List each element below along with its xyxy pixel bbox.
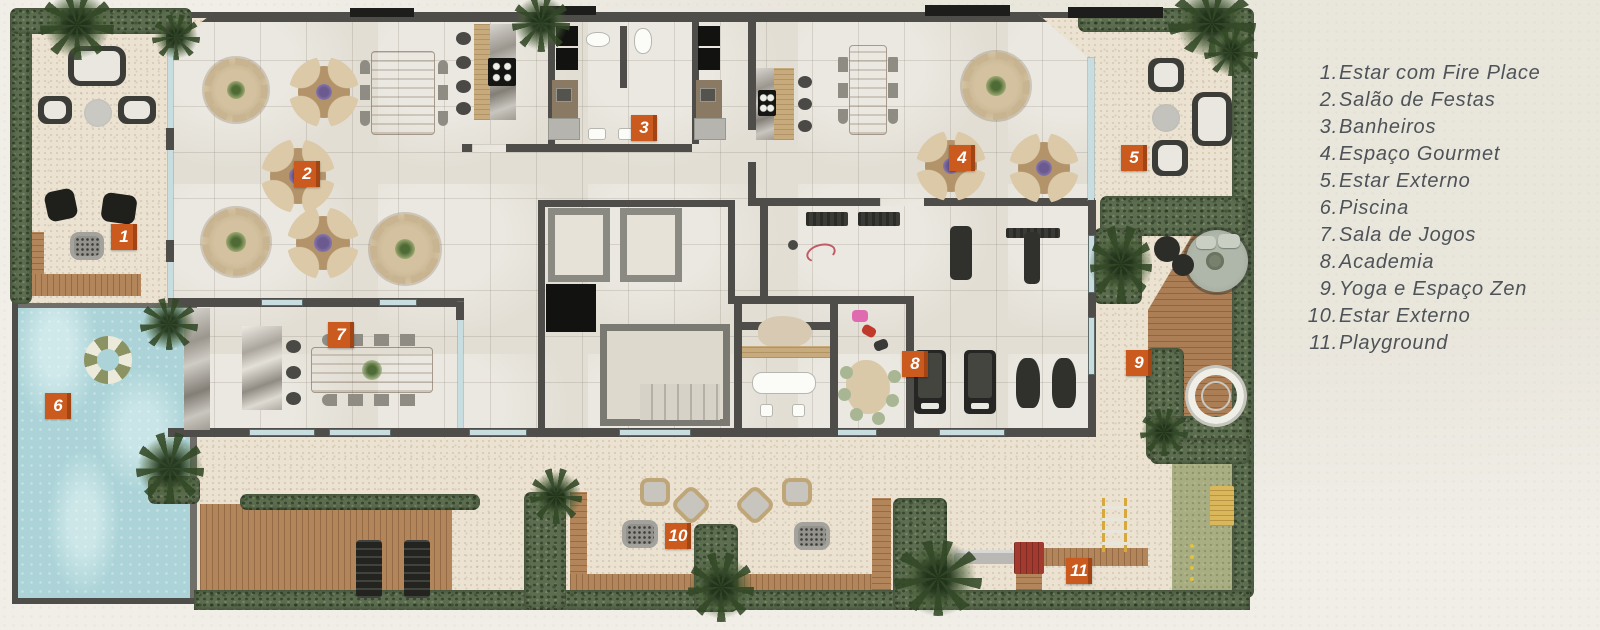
kids-seat (888, 370, 901, 383)
outdoor-armchair (1148, 58, 1184, 92)
cooktop (758, 90, 776, 116)
legend-item: 2.Salão de Festas (1294, 87, 1584, 114)
square-table (298, 66, 350, 118)
legend-item: 9.Yoga e Espaço Zen (1294, 276, 1584, 303)
legend-label: Piscina (1339, 195, 1409, 222)
legend-number: 11. (1294, 330, 1338, 357)
zen-console (742, 346, 830, 358)
bar-stool (456, 32, 471, 45)
legend-number: 10. (1294, 303, 1338, 330)
glass-door (262, 300, 302, 305)
kids-activity-table (846, 360, 890, 414)
marker-estar-externo-5: 5 (1121, 145, 1147, 171)
exercise-bike (1052, 358, 1076, 408)
legend-label: Playground (1339, 330, 1448, 357)
palm-tree (152, 14, 200, 60)
bar-stool (798, 76, 812, 88)
chair-row (360, 60, 370, 126)
ladder-rung (1102, 518, 1127, 521)
marker-yoga-zen: 9 (1126, 350, 1152, 376)
kids-seat (840, 366, 853, 379)
shower-box (556, 48, 578, 70)
exercise-bike (1016, 358, 1040, 408)
zen-stool (792, 404, 805, 417)
lawn-marker-dot (1190, 566, 1194, 570)
chair-row (322, 394, 422, 406)
wall-post (166, 128, 174, 150)
stair-landing (546, 284, 596, 332)
marker-espaco-gourmet: 4 (949, 145, 975, 171)
zen-stool (760, 404, 773, 417)
glass-door (250, 430, 314, 435)
palm-tree (140, 298, 198, 350)
glass-door (836, 430, 876, 435)
palm-tree (530, 468, 582, 524)
sink (588, 128, 606, 140)
legend-item: 5.Estar Externo (1294, 168, 1584, 195)
elevator-shaft (548, 208, 610, 282)
bathroom-sink (700, 88, 716, 102)
fire-armchair (100, 192, 138, 225)
marker-estar-externo-10: 10 (665, 523, 691, 549)
wall-rooms-north (728, 296, 914, 304)
lounge-chair (38, 96, 72, 124)
cooktop (488, 58, 516, 86)
marker-academia: 8 (902, 351, 928, 377)
daybed-pillow (1218, 234, 1240, 248)
marker-salao-festas: 2 (294, 161, 320, 187)
legend-label: Estar Externo (1339, 303, 1471, 330)
legend-number: 3. (1294, 114, 1338, 141)
bar-stool (286, 392, 301, 405)
chair-row (888, 54, 898, 124)
glass-door (940, 430, 1004, 435)
wall-corridor (760, 206, 768, 296)
fire-pit (794, 522, 830, 550)
wall-zen-west (734, 296, 742, 436)
legend-number: 2. (1294, 87, 1338, 114)
bar-stool (798, 120, 812, 132)
glass-door (330, 430, 390, 435)
outdoor-armchair (1152, 140, 1188, 176)
marker-piscina: 6 (45, 393, 71, 419)
square-table (1018, 142, 1070, 194)
legend-number: 6. (1294, 195, 1338, 222)
palm-tree (1204, 28, 1258, 76)
floor-plan-canvas: 1 2 3 4 5 6 7 8 9 10 11 1.Estar com Fire… (0, 0, 1600, 630)
bar-stool (286, 340, 301, 353)
marker-sala-jogos: 7 (328, 322, 354, 348)
legend-label: Academia (1339, 249, 1434, 276)
chair-row (838, 54, 848, 124)
games-room-bar (242, 326, 282, 410)
lounge-chair (118, 96, 156, 124)
glass-door (1089, 318, 1094, 374)
dumbbell-rack (858, 212, 900, 226)
massage-bed (752, 372, 816, 394)
jacuzzi (1188, 368, 1244, 424)
legend-item: 3.Banheiros (1294, 114, 1584, 141)
legend-item: 1.Estar com Fire Place (1294, 60, 1584, 87)
round-dining-table (202, 208, 270, 276)
bar-stool (456, 102, 471, 115)
hedge (10, 14, 32, 304)
bathroom-sink (556, 88, 572, 102)
glass-door (620, 430, 690, 435)
door-gap (472, 144, 506, 152)
legend-number: 1. (1294, 60, 1338, 87)
lawn-marker-dot (1190, 544, 1194, 548)
terrace-deck (29, 274, 141, 296)
kitchen-counter (774, 68, 794, 140)
kettlebell (788, 240, 798, 250)
glass-wall-jogos-east (458, 302, 463, 430)
legend-item: 8.Academia (1294, 249, 1584, 276)
legend: 1.Estar com Fire Place 2.Salão de Festas… (1294, 60, 1584, 357)
legend-item: 10.Estar Externo (1294, 303, 1584, 330)
legend-label: Espaço Gourmet (1339, 141, 1500, 168)
round-dining-table (204, 58, 268, 122)
playhouse (1014, 542, 1044, 574)
wall-post (456, 302, 464, 320)
wall-gourmet-west (748, 162, 756, 202)
legend-label: Banheiros (1339, 114, 1436, 141)
legend-number: 7. (1294, 222, 1338, 249)
legend-number: 8. (1294, 249, 1338, 276)
kids-seat (850, 408, 863, 421)
dumbbell-rack (806, 212, 848, 226)
outdoor-side-table (1152, 104, 1180, 132)
toilet (634, 28, 652, 54)
legend-number: 5. (1294, 168, 1338, 195)
long-dining-table (372, 52, 434, 134)
shower-box (698, 26, 720, 46)
wall-segment (1068, 7, 1163, 18)
ladder-rung (1102, 506, 1127, 509)
playground-platform (1040, 548, 1148, 566)
wall-core-west (538, 200, 545, 436)
wall-kids-west (830, 296, 838, 436)
gourmet-long-table (850, 46, 886, 134)
fire-pit (622, 520, 658, 548)
garden-chair (640, 478, 670, 506)
legend-item: 6.Piscina (1294, 195, 1584, 222)
legend-label: Estar Externo (1339, 168, 1471, 195)
lawn-marker-dot (1190, 555, 1194, 559)
marker-banheiros: 3 (631, 115, 657, 141)
bench-press-bench (1024, 232, 1040, 284)
kids-seat (886, 394, 899, 407)
outdoor-side-table (84, 99, 112, 127)
square-table (296, 216, 350, 270)
appliance (694, 118, 726, 140)
toy-car (852, 310, 868, 322)
daybed-basket (1206, 252, 1224, 270)
marker-estar-fireplace: 1 (111, 224, 137, 250)
stair-steps (640, 384, 720, 420)
kids-seat (838, 388, 851, 401)
ladder-rung (1102, 530, 1127, 533)
treadmill (964, 350, 996, 414)
kids-seat (872, 412, 885, 425)
wall-segment (925, 5, 1010, 16)
legend-label: Yoga e Espaço Zen (1339, 276, 1527, 303)
round-dining-table (962, 52, 1030, 120)
palm-tree (1090, 225, 1152, 303)
wall-segment (350, 8, 414, 17)
glass-door (470, 430, 526, 435)
fire-pit (70, 232, 104, 260)
legend-number: 4. (1294, 141, 1338, 168)
legend-label: Sala de Jogos (1339, 222, 1476, 249)
gym-machine (950, 226, 972, 280)
sun-lounger (404, 540, 430, 598)
hedge (1232, 8, 1254, 598)
palm-tree (688, 552, 754, 622)
bar-stool (798, 98, 812, 110)
wall-core-top (538, 200, 735, 207)
yoga-mat (1210, 486, 1234, 526)
bar-stool (286, 366, 301, 379)
bar-stool (456, 80, 471, 93)
legend-label: Salão de Festas (1339, 87, 1496, 114)
marker-playground: 11 (1066, 558, 1092, 584)
lawn-marker-dot (1190, 577, 1194, 581)
elevator-shaft (620, 208, 682, 282)
pool-float-ring (84, 336, 132, 384)
pouf (1172, 254, 1194, 276)
glass-wall-gourmet-east (1088, 58, 1094, 200)
ladder-rung (1102, 542, 1127, 545)
legend-number: 9. (1294, 276, 1338, 303)
wall-core-east (728, 200, 735, 304)
wall-salao-south (168, 298, 464, 307)
palm-tree (894, 540, 982, 616)
palm-tree (136, 432, 204, 504)
door-gap (880, 198, 924, 206)
garden-chair (782, 478, 812, 506)
sun-lounger (356, 540, 382, 598)
toilet (586, 32, 610, 47)
wall-post (166, 240, 174, 262)
legend-item: 4.Espaço Gourmet (1294, 141, 1584, 168)
outdoor-loveseat (1192, 92, 1232, 146)
wall-bath (620, 26, 627, 88)
hedge (240, 494, 480, 510)
wall-gourmet-west (748, 20, 756, 130)
legend-item: 7.Sala de Jogos (1294, 222, 1584, 249)
appliance (548, 118, 580, 140)
palm-tree (1140, 408, 1188, 456)
garden-deck-band (872, 498, 891, 596)
glass-door (380, 300, 416, 305)
table-plant (362, 360, 382, 380)
round-dining-table (370, 214, 440, 284)
legend-item: 11.Playground (1294, 330, 1584, 357)
daybed-pillow (1196, 236, 1216, 249)
chair-row (438, 60, 448, 126)
legend-label: Estar com Fire Place (1339, 60, 1541, 87)
bar-stool (456, 56, 471, 69)
shower-box (698, 48, 720, 70)
zen-stone (758, 316, 812, 348)
